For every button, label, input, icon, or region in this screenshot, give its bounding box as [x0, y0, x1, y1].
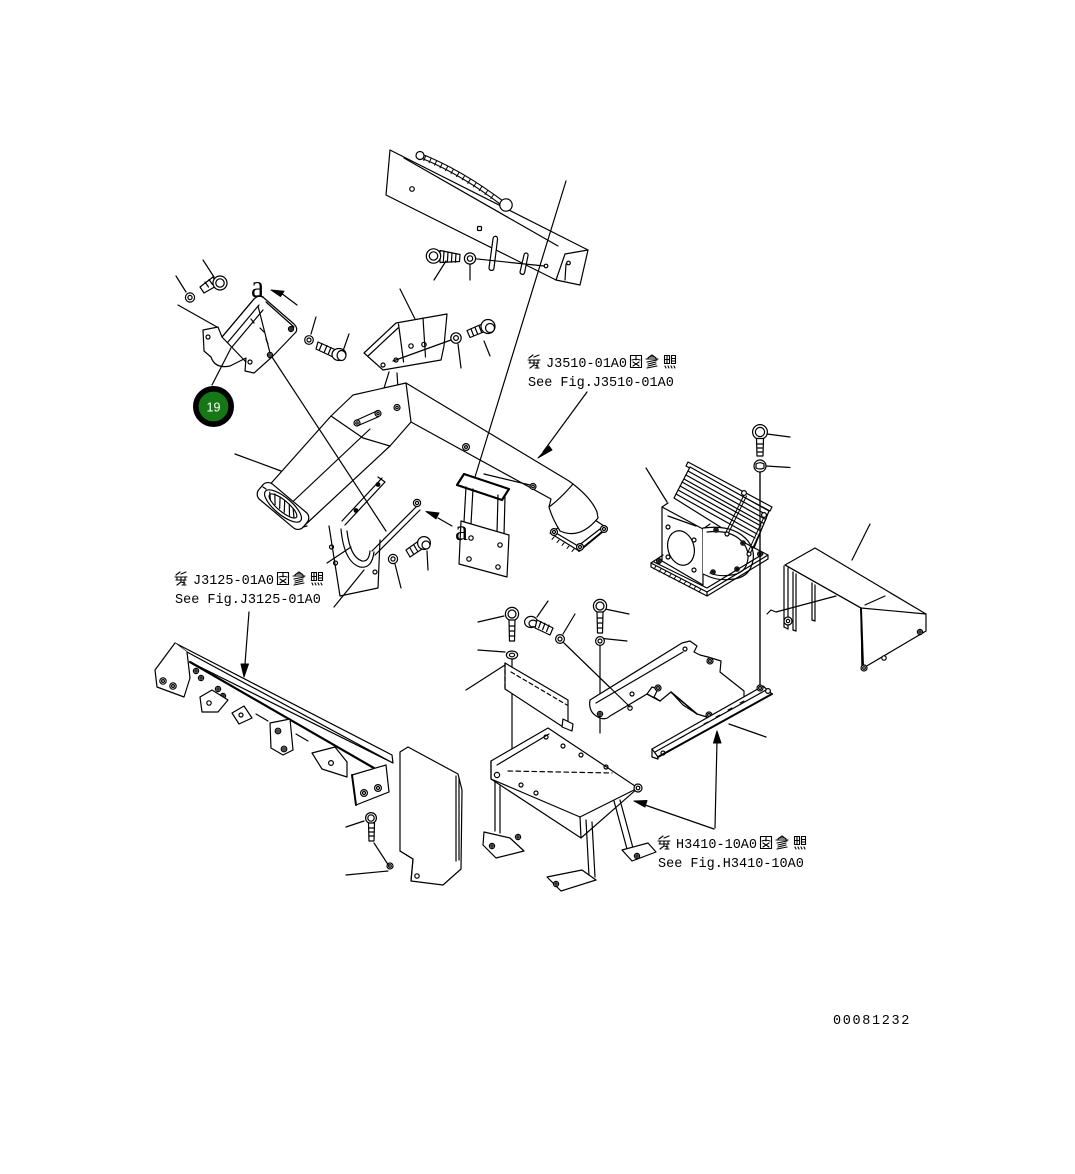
svg-text:a: a — [251, 268, 264, 304]
svg-text:See Fig.H3410-10A0: See Fig.H3410-10A0 — [658, 857, 804, 872]
svg-text:19: 19 — [207, 401, 221, 415]
svg-text:See Fig.J3510-01A0: See Fig.J3510-01A0 — [528, 376, 674, 391]
svg-text:See Fig.J3125-01A0: See Fig.J3125-01A0 — [175, 593, 321, 608]
svg-text:a: a — [455, 514, 468, 547]
svg-text:J3125-01A0: J3125-01A0 — [193, 574, 274, 589]
svg-text:J3510-01A0: J3510-01A0 — [546, 357, 627, 372]
svg-text:H3410-10A0: H3410-10A0 — [676, 838, 757, 853]
svg-text:00081232: 00081232 — [833, 1014, 911, 1029]
